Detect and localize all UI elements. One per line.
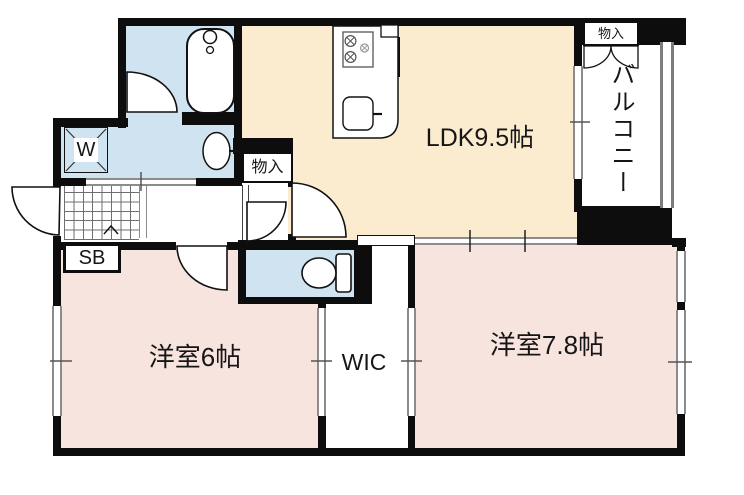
kitchen-counter xyxy=(333,25,398,138)
toilet-icon xyxy=(302,254,351,292)
duct-notch xyxy=(381,25,398,37)
ldk-door-swing xyxy=(292,183,346,237)
bath-faucet-icon xyxy=(204,31,217,44)
entry-door-swing xyxy=(12,187,60,235)
window-center-ticks xyxy=(50,122,692,362)
balcony-label: バルコニー xyxy=(602,48,638,210)
washer-label: W xyxy=(74,138,98,162)
bathtub xyxy=(187,29,234,113)
entrance-caret xyxy=(104,226,118,234)
floor-plan: SB 物入 物入 LDK9.5帖 洋室6帖 洋室7.8帖 WIC バルコニー W xyxy=(0,0,744,495)
bedroom78-label: 洋室7.8帖 xyxy=(457,331,637,359)
lobby-door-swing xyxy=(247,202,286,241)
gas-stove-icon xyxy=(343,32,373,67)
track-ticks xyxy=(470,230,525,252)
wic-label: WIC xyxy=(324,349,404,375)
bathroom-door-swing xyxy=(127,72,177,112)
ldk-label: LDK9.5帖 xyxy=(390,124,570,152)
bedroom6-label: 洋室6帖 xyxy=(105,343,285,371)
bedroom6-door-swing xyxy=(177,246,227,290)
vanity-sink xyxy=(203,133,239,170)
